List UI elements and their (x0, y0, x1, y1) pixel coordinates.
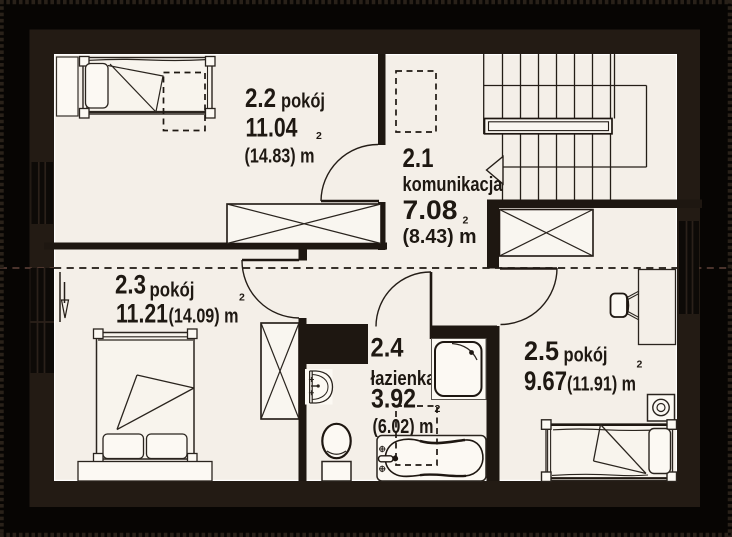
svg-text:11.21: 11.21 (116, 298, 168, 328)
svg-text:3.92: 3.92 (371, 384, 416, 414)
svg-text:7.08: 7.08 (403, 195, 458, 225)
svg-text:2.2: 2.2 (245, 83, 276, 113)
svg-text:2.5: 2.5 (524, 336, 559, 366)
svg-text:(14.83) m: (14.83) m (245, 145, 315, 168)
svg-text:11.04: 11.04 (246, 113, 298, 143)
svg-text:2.4: 2.4 (371, 333, 404, 363)
svg-text:2.1: 2.1 (403, 143, 434, 173)
svg-text:9.67: 9.67 (524, 366, 567, 396)
svg-text:(11.91) m: (11.91) m (567, 373, 636, 396)
svg-text:pokój: pokój (281, 90, 325, 113)
svg-text:2: 2 (239, 292, 245, 304)
svg-text:(14.09) m: (14.09) m (169, 305, 239, 328)
svg-text:(6.02) m: (6.02) m (373, 415, 434, 438)
svg-text:komunikacja: komunikacja (403, 173, 503, 196)
svg-text:2.3: 2.3 (115, 270, 146, 300)
svg-text:pokój: pokój (564, 344, 608, 367)
svg-text:(8.43) m: (8.43) m (403, 225, 477, 248)
svg-text:2: 2 (316, 130, 322, 142)
svg-text:2: 2 (637, 359, 643, 371)
